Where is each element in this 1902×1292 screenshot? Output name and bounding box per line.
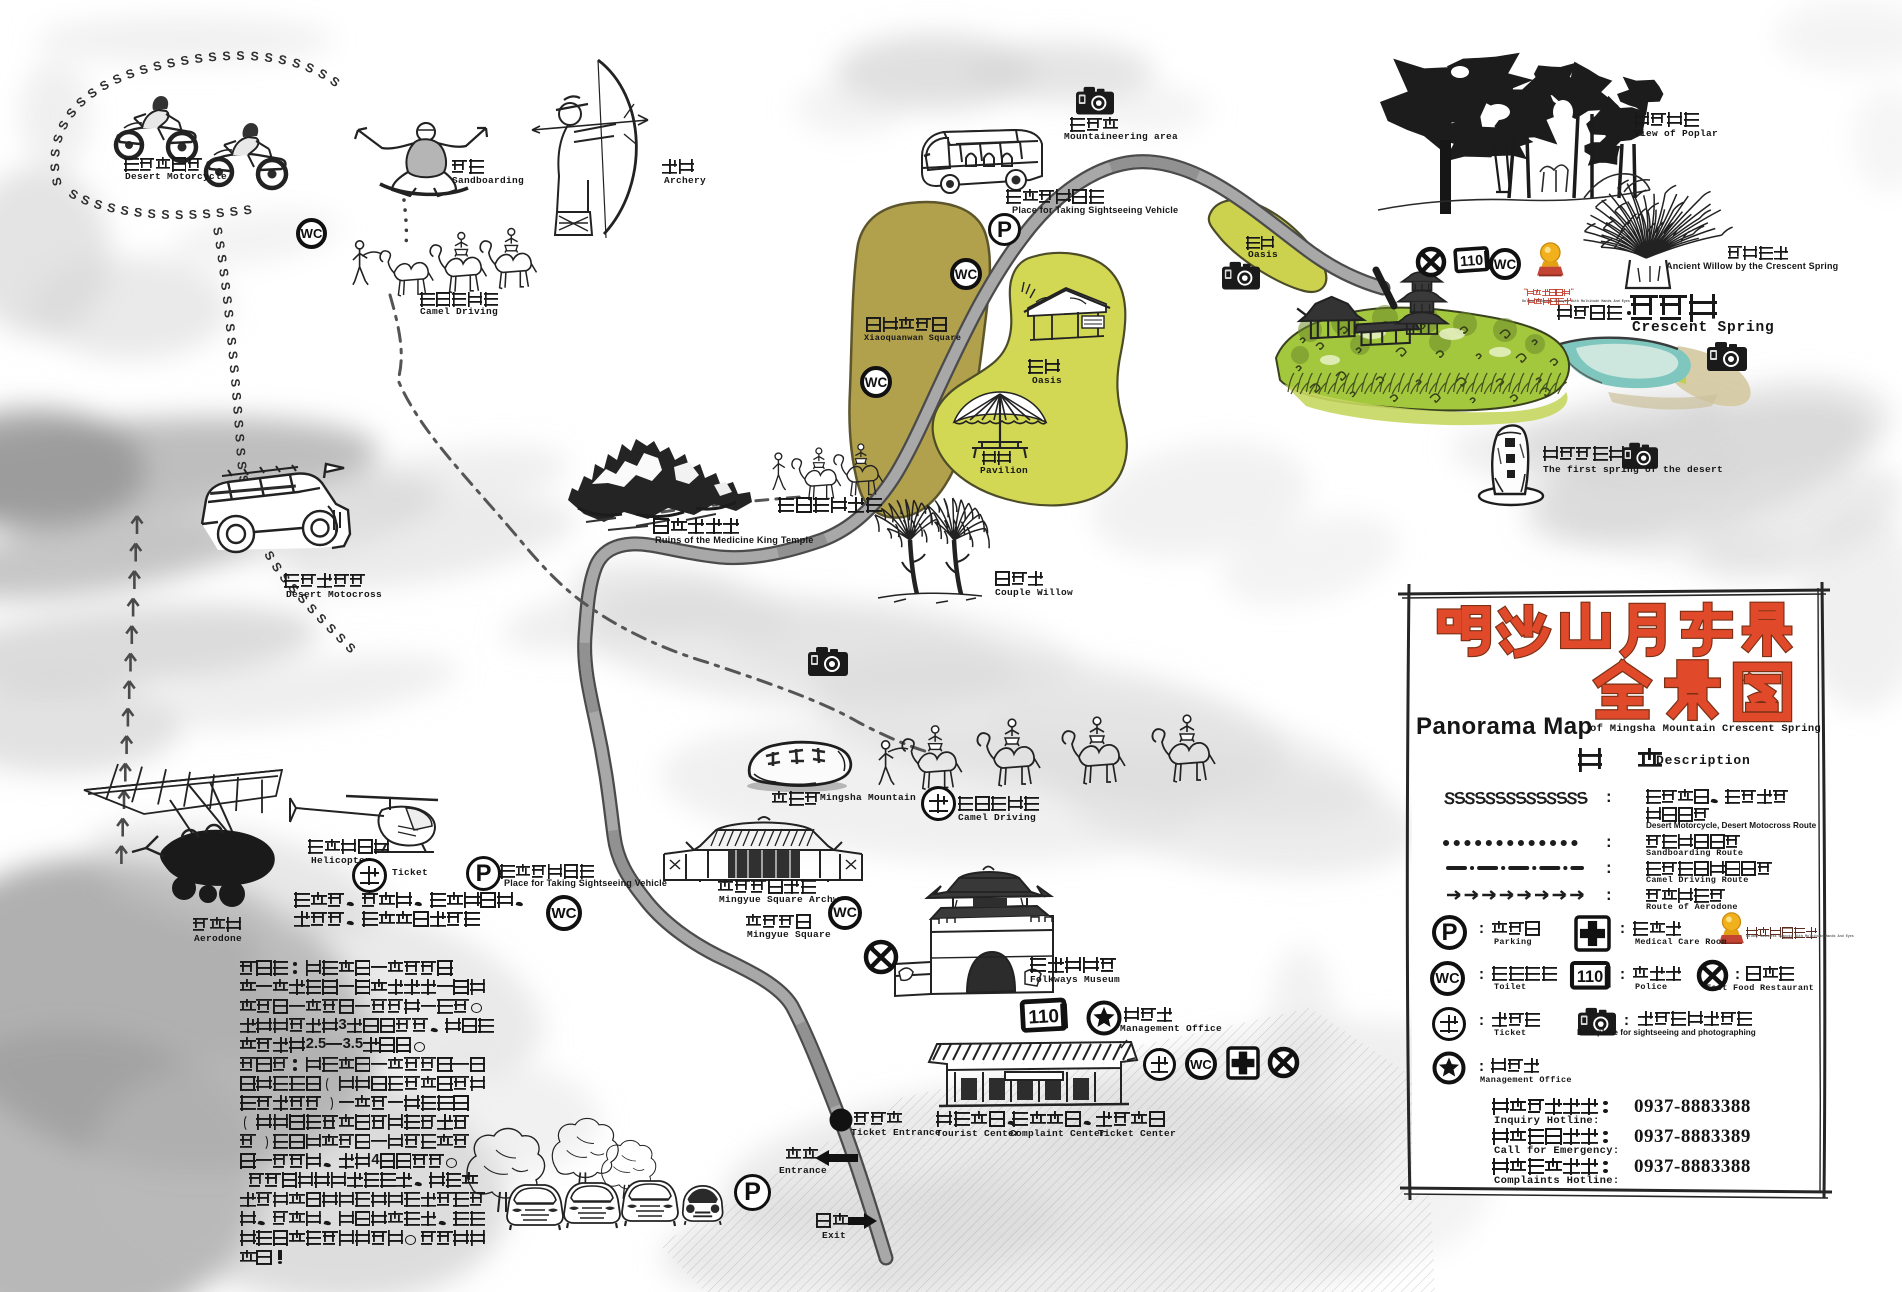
svg-text:110: 110 (1460, 253, 1484, 271)
svg-text:110: 110 (1577, 968, 1603, 986)
svg-text:110: 110 (1028, 1006, 1060, 1029)
